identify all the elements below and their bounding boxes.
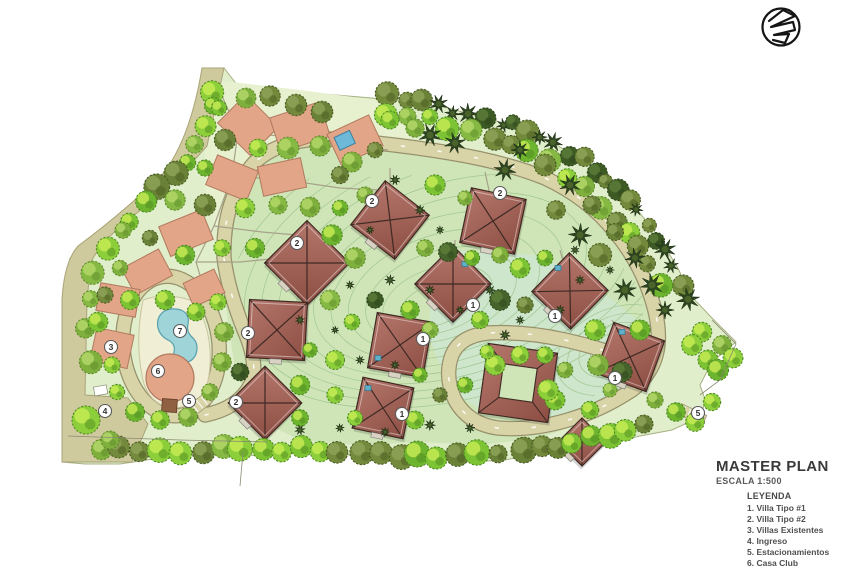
tree (136, 191, 157, 212)
palm-tree (380, 427, 390, 437)
tree (155, 290, 175, 310)
tree (269, 196, 287, 214)
tree (537, 347, 553, 363)
svg-text:7: 7 (178, 326, 183, 336)
masterplan-sheet: 2222211111345567 MASTER PLAN ESCALA 1:50… (0, 0, 850, 570)
tree (401, 301, 419, 319)
tree (606, 223, 623, 240)
tree (72, 406, 100, 434)
tree (109, 384, 124, 399)
tree (96, 237, 119, 260)
tree (126, 403, 145, 422)
tree (517, 297, 533, 313)
tree (411, 89, 433, 111)
tree (489, 445, 507, 463)
tree (193, 442, 215, 464)
tree (245, 238, 264, 257)
legend-list: 1. Villa Tipo #12. Villa Tipo #23. Villa… (747, 503, 829, 570)
tree (228, 436, 253, 461)
tree (260, 86, 280, 106)
palm-tree (415, 205, 425, 215)
plan-title: MASTER PLAN (716, 458, 829, 475)
tree (129, 442, 149, 462)
svg-text:3: 3 (109, 342, 114, 352)
tree (179, 408, 198, 427)
plan-marker-2: 2 (291, 237, 304, 250)
tree (79, 351, 102, 374)
plan-marker-2: 2 (494, 187, 507, 200)
tree (327, 387, 343, 403)
legend-item: 1. Villa Tipo #1 (747, 503, 829, 514)
tree (186, 136, 204, 154)
tree (703, 393, 720, 410)
svg-text:1: 1 (613, 373, 618, 383)
tree (367, 292, 384, 309)
tree (603, 383, 617, 397)
plan-marker-1: 1 (467, 299, 480, 312)
plan-marker-1: 1 (396, 408, 409, 421)
tree (435, 117, 459, 141)
plan-marker-7: 7 (174, 325, 187, 338)
tree (272, 442, 292, 462)
svg-text:1: 1 (421, 334, 426, 344)
legend-item: 4. Ingreso (747, 536, 829, 547)
tree (642, 218, 656, 232)
tree (320, 290, 340, 310)
tree (375, 82, 399, 106)
tree (231, 363, 249, 381)
plan-marker-1: 1 (609, 372, 622, 385)
svg-text:2: 2 (246, 328, 251, 338)
svg-text:2: 2 (234, 397, 239, 407)
tree (588, 243, 611, 266)
tree (367, 142, 383, 158)
tree (433, 388, 448, 403)
tree (667, 403, 686, 422)
tree (370, 442, 393, 465)
tree (417, 240, 434, 257)
tree (290, 435, 312, 457)
tree (460, 119, 482, 141)
villa-hip-roof (246, 300, 309, 366)
palm-tree (485, 285, 495, 295)
tree (165, 190, 185, 210)
tree (547, 201, 566, 220)
plan-marker-1: 1 (417, 333, 430, 346)
plan-marker-3: 3 (105, 341, 118, 354)
tree (635, 415, 653, 433)
tree (480, 345, 494, 359)
tree (97, 287, 113, 303)
tree (120, 290, 139, 309)
tree (575, 147, 594, 166)
tree (187, 303, 205, 321)
tree (381, 111, 399, 129)
tree (214, 240, 231, 257)
tree (672, 275, 693, 296)
tree (439, 243, 458, 262)
title-block: MASTER PLAN ESCALA 1:500 (716, 458, 829, 486)
tree (406, 119, 424, 137)
svg-text:5: 5 (187, 396, 192, 406)
legend-item: 2. Villa Tipo #2 (747, 514, 829, 525)
tree (331, 166, 348, 183)
legend: LEYENDA 1. Villa Tipo #12. Villa Tipo #2… (747, 491, 829, 570)
tree (303, 343, 318, 358)
plan-scale: ESCALA 1:500 (716, 476, 829, 486)
tree (588, 355, 609, 376)
tree (464, 440, 490, 466)
tree (211, 100, 226, 115)
palm-tree (436, 226, 444, 234)
tree (88, 312, 108, 332)
svg-text:1: 1 (400, 409, 405, 419)
tree (101, 431, 119, 449)
tree (195, 116, 216, 137)
tree (347, 410, 362, 425)
tree (510, 258, 530, 278)
tree (175, 245, 194, 264)
tree (344, 314, 360, 330)
plan-marker-5: 5 (692, 407, 705, 420)
svg-text:1: 1 (553, 311, 558, 321)
tree (585, 320, 606, 341)
tree (511, 346, 529, 364)
tree (332, 200, 348, 216)
tree (249, 139, 267, 157)
tree (581, 401, 599, 419)
plan-marker-1: 1 (549, 310, 562, 323)
plan-marker-2: 2 (366, 195, 379, 208)
tree (647, 392, 663, 408)
tree (707, 359, 728, 380)
plan-marker-2: 2 (242, 327, 255, 340)
tree (492, 247, 509, 264)
tree (290, 375, 310, 395)
svg-text:2: 2 (370, 196, 375, 206)
plan-marker-4: 4 (99, 405, 112, 418)
tree (457, 377, 473, 393)
tree (322, 225, 343, 246)
tree (285, 94, 307, 116)
tree (583, 196, 601, 214)
tree (147, 438, 172, 463)
tree (81, 261, 104, 284)
tree (326, 351, 345, 370)
tree (300, 197, 320, 217)
palm-tree (511, 141, 529, 159)
tree (112, 260, 127, 275)
palm-tree (390, 360, 399, 369)
tree (213, 353, 232, 372)
tree (574, 176, 594, 196)
plan-marker-2: 2 (230, 396, 243, 409)
tree (277, 137, 299, 159)
tree (682, 335, 703, 356)
tree (630, 320, 650, 340)
tree (236, 88, 256, 108)
tree (214, 129, 235, 150)
tree (538, 380, 559, 401)
tree (614, 419, 636, 441)
tree (292, 410, 309, 427)
tree (104, 357, 120, 373)
svg-text:6: 6 (156, 366, 161, 376)
tree (562, 433, 582, 453)
svg-text:2: 2 (295, 238, 300, 248)
tree (471, 311, 488, 328)
tree (215, 323, 234, 342)
palm-tree (606, 266, 615, 275)
tree (142, 230, 158, 246)
tree (557, 362, 573, 378)
palm-tree (656, 301, 674, 319)
svg-text:4: 4 (103, 406, 108, 416)
tree (235, 198, 255, 218)
tree (194, 194, 216, 216)
svg-text:1: 1 (471, 300, 476, 310)
tree (425, 175, 445, 195)
firm-logo (763, 9, 800, 46)
tree (326, 442, 348, 464)
gate-house (93, 385, 107, 396)
tree (458, 191, 473, 206)
tree (210, 294, 227, 311)
tree (197, 160, 213, 176)
tree (464, 250, 479, 265)
tree (413, 368, 427, 382)
tree (311, 101, 333, 123)
plan-marker-5: 5 (183, 395, 196, 408)
tree (422, 109, 438, 125)
tree (202, 384, 219, 401)
tree (537, 250, 553, 266)
tree (82, 291, 99, 308)
tree (534, 154, 556, 176)
tree (345, 248, 366, 269)
tree (169, 442, 192, 465)
legend-item: 6. Casa Club (747, 558, 829, 569)
tree (425, 447, 447, 469)
plan-marker-6: 6 (152, 365, 165, 378)
svg-text:2: 2 (498, 188, 503, 198)
legend-item: 3. Villas Existentes (747, 525, 829, 536)
tree (115, 222, 131, 238)
tree (151, 411, 170, 430)
legend-heading: LEYENDA (747, 491, 829, 501)
palm-tree (575, 275, 584, 284)
tree (310, 136, 330, 156)
svg-text:5: 5 (696, 408, 701, 418)
legend-item: 5. Estacionamientos (747, 547, 829, 558)
